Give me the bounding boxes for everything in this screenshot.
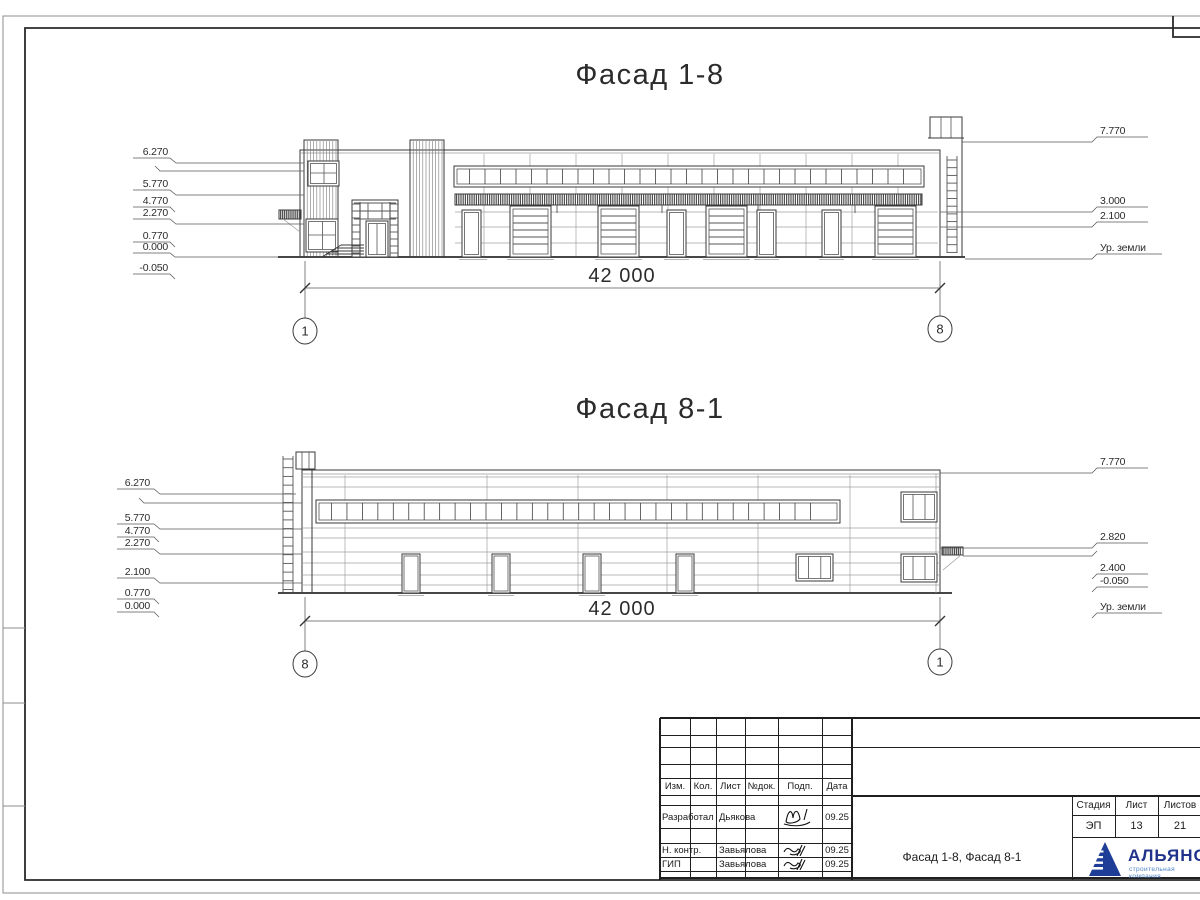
col-ndok: №док. bbox=[746, 779, 777, 794]
signature bbox=[782, 858, 818, 870]
elevation-mark: 4.770 bbox=[143, 195, 169, 207]
facade1-left-windows bbox=[306, 161, 339, 252]
signature bbox=[780, 806, 820, 827]
elevation-mark: 7.770 bbox=[1100, 125, 1126, 137]
elevation-mark: 4.770 bbox=[125, 525, 151, 537]
col-izm: Изм. bbox=[661, 779, 689, 794]
elevation-mark: 2.270 bbox=[143, 207, 169, 219]
stage-col-label: Стадия bbox=[1072, 797, 1115, 814]
facade-top-title: Фасад 1-8 bbox=[575, 59, 724, 91]
facade-8-1-view: Фасад 8-1 bbox=[117, 393, 1162, 677]
row-name: Завьялова bbox=[719, 843, 776, 857]
title-block-doc-title: Фасад 1-8, Фасад 8-1 bbox=[856, 846, 1068, 868]
row-name: Завьялова bbox=[719, 857, 776, 871]
axis-number: 1 bbox=[936, 655, 943, 670]
facade1-left-awning bbox=[279, 210, 301, 232]
facade1-gates bbox=[510, 206, 916, 257]
dimension-text: 42 000 bbox=[588, 265, 655, 287]
axis-number: 1 bbox=[301, 324, 308, 339]
elevation-mark: 2.100 bbox=[125, 566, 151, 578]
row-role: Разработал bbox=[662, 809, 717, 825]
facade1-tower bbox=[928, 117, 964, 257]
row-date: 09.25 bbox=[823, 857, 851, 871]
col-podp: Подп. bbox=[779, 779, 821, 794]
elevation-mark: 3.000 bbox=[1100, 195, 1126, 207]
elevation-mark: -0.050 bbox=[1100, 575, 1129, 587]
facade2-dimension: 42 000 8 1 bbox=[293, 597, 952, 677]
dimension-text: 42 000 bbox=[588, 598, 655, 620]
row-date: 09.25 bbox=[823, 809, 851, 825]
fire-escape-ladder bbox=[947, 156, 957, 253]
logo-tagline: строительная компания bbox=[1129, 866, 1200, 880]
row-role: Н. контр. bbox=[662, 843, 717, 857]
facade2-tower bbox=[283, 452, 315, 593]
elevation-mark: 5.770 bbox=[125, 512, 151, 524]
row-role: ГИП bbox=[662, 857, 717, 871]
pyramid-logo-icon bbox=[1088, 841, 1122, 877]
ground-level-label: Ур. земли bbox=[1100, 242, 1146, 254]
elevation-mark: 0.000 bbox=[125, 600, 151, 612]
col-list: Лист bbox=[717, 779, 744, 794]
logo-name: АЛЬЯНС bbox=[1128, 846, 1200, 866]
elevation-mark: 7.770 bbox=[1100, 456, 1126, 468]
facade2-right-marks: 7.770 2.820 2.400 -0.050 Ур. земли bbox=[940, 456, 1162, 618]
elevation-mark: 2.400 bbox=[1100, 562, 1126, 574]
elevation-mark: 0.770 bbox=[125, 587, 151, 599]
row-date: 09.25 bbox=[823, 843, 851, 857]
elevation-mark: 0.000 bbox=[143, 241, 169, 253]
facade2-ribbon-window bbox=[316, 500, 840, 523]
sheet-col-label: Лист bbox=[1115, 797, 1158, 814]
col-data: Дата bbox=[823, 779, 851, 794]
sheet-value: 13 bbox=[1115, 816, 1158, 835]
facade-1-8-view: Фасад 1-8 bbox=[133, 59, 1162, 344]
facade2-doors bbox=[402, 554, 694, 593]
sheets-value: 21 bbox=[1158, 816, 1200, 835]
company-logo: АЛЬЯНС строительная компания bbox=[1074, 838, 1200, 879]
facade1-dimension: 42 000 1 8 bbox=[293, 261, 952, 344]
facade1-ribbon-window bbox=[454, 166, 924, 187]
elevation-mark: -0.050 bbox=[139, 262, 168, 274]
elevation-mark: 6.270 bbox=[143, 146, 169, 158]
row-name: Дьякова bbox=[719, 809, 776, 825]
elevation-mark: 2.100 bbox=[1100, 210, 1126, 222]
axis-number: 8 bbox=[301, 657, 308, 672]
title-block: Изм. Кол. Лист №док. Подп. Дата Разработ… bbox=[660, 718, 1200, 880]
stage-value: ЭП bbox=[1072, 816, 1115, 835]
ground-level-label: Ур. земли bbox=[1100, 601, 1146, 613]
col-kol: Кол. bbox=[691, 779, 715, 794]
elevation-mark: 6.270 bbox=[125, 477, 151, 489]
sheets-col-label: Листов bbox=[1158, 797, 1200, 814]
signature bbox=[782, 844, 818, 856]
facade2-right-canopy bbox=[942, 547, 963, 570]
drawing-sheet: Фасад 1-8 bbox=[0, 0, 1200, 900]
facade1-left-marks: 6.270 5.770 4.770 2.270 0.770 0.000 -0.0… bbox=[133, 146, 304, 279]
axis-number: 8 bbox=[936, 322, 943, 337]
facade2-left-marks: 6.270 5.770 4.770 2.270 2.100 0.770 0.00… bbox=[117, 477, 302, 617]
elevation-mark: 2.270 bbox=[125, 537, 151, 549]
facade1-right-marks: 7.770 3.000 2.100 Ур. земли bbox=[940, 125, 1162, 259]
elevation-mark: 2.820 bbox=[1100, 531, 1126, 543]
facade-bottom-title: Фасад 8-1 bbox=[575, 393, 724, 425]
elevation-mark: 5.770 bbox=[143, 178, 169, 190]
